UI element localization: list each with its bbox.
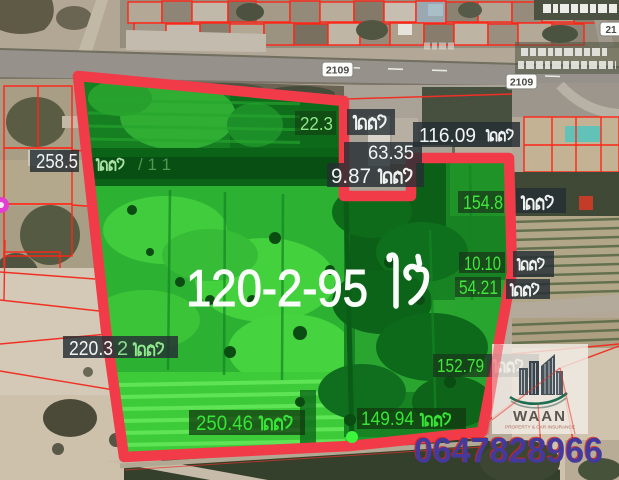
svg-text:154.8: 154.8 [463,193,503,214]
svg-text:63.35: 63.35 [368,143,414,164]
svg-text:258.5: 258.5 [36,151,78,173]
svg-text:9.87: 9.87 [331,165,371,188]
svg-text:WAAN: WAAN [513,408,567,425]
svg-text:220.3: 220.3 [69,338,113,360]
svg-text:250.46: 250.46 [196,412,253,435]
svg-text:149.94: 149.94 [361,409,414,430]
svg-text:21: 21 [605,25,617,36]
svg-text:2109: 2109 [510,77,534,89]
svg-text:2: 2 [117,338,128,360]
svg-text:116.09: 116.09 [419,125,476,147]
svg-text:152.79: 152.79 [437,356,484,376]
svg-text:10.10: 10.10 [464,254,501,275]
svg-text:22.3: 22.3 [300,114,333,134]
svg-text:120-2-95: 120-2-95 [186,260,368,318]
svg-text:2109: 2109 [326,65,350,77]
svg-text:0647828966: 0647828966 [414,432,603,471]
svg-text:/ 1 1: / 1 1 [138,155,171,174]
svg-text:54.21: 54.21 [459,278,498,299]
